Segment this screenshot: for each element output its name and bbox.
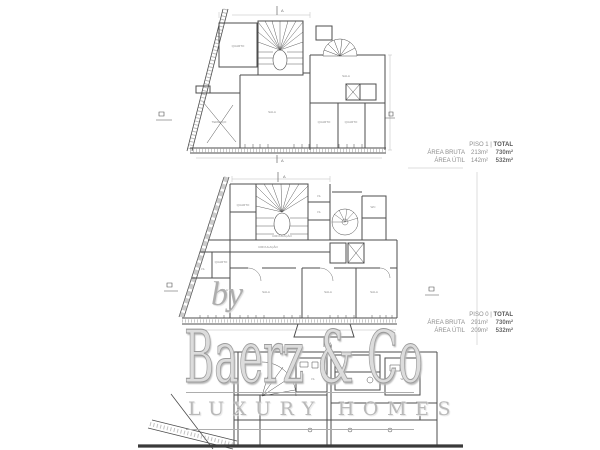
piso1-grand-stair-icon (258, 21, 303, 64)
piso0-left-marker (164, 283, 178, 291)
area-row-bruta: ÁREA BRUTA 291m² 730m² (421, 319, 513, 327)
room-label: WC (371, 205, 377, 209)
area-row-label: ÁREA BRUTA (421, 319, 465, 327)
area-total-value: 532m² (488, 157, 513, 165)
lower-boundary-hatch (150, 424, 235, 445)
piso1-left-marker (156, 112, 172, 120)
area-summary-title: PISO 0 | TOTAL (421, 311, 513, 319)
piso0-elevator-x-icon (348, 243, 364, 263)
area-total-value: 730m² (488, 319, 513, 327)
room-label: QUARTO (318, 120, 331, 124)
area-row-label: ÁREA ÚTIL (421, 157, 465, 165)
area-summary-piso0: PISO 0 | TOTAL ÁREA BRUTA 291m² 730m² ÁR… (421, 311, 513, 335)
room-label: QUARTO (237, 203, 250, 207)
piso0-grand-stair-icon (256, 184, 308, 234)
area-total-value: 532m² (488, 327, 513, 335)
room-label: I.S. (317, 210, 322, 214)
room-label: CIRCULAÇÃO (272, 233, 292, 238)
room-label: SALA (268, 110, 276, 114)
piso0-door-arcs (248, 268, 390, 281)
piso1-fan-stair-icon (323, 39, 357, 56)
piso1-dimension-lines (196, 12, 392, 158)
section-marker-a-top0: A (283, 174, 286, 179)
room-label: QUARTO (232, 44, 245, 48)
room-label: SALA (324, 290, 332, 294)
area-floor-value: 142m² (465, 157, 488, 165)
area-row-label: ÁREA BRUTA (421, 149, 465, 157)
piso1-boundary-hatch (190, 9, 226, 151)
piso1-walls (190, 21, 386, 153)
piso0-right-marker (425, 287, 439, 295)
room-label: QUARTO (345, 120, 358, 124)
area-summary-piso1: PISO 1 | TOTAL ÁREA BRUTA 213m² 730m² ÁR… (421, 141, 513, 165)
area-row-util: ÁREA ÚTIL 209m² 532m² (421, 327, 513, 335)
area-total-value: 730m² (488, 149, 513, 157)
area-row-util: ÁREA ÚTIL 142m² 532m² (421, 157, 513, 165)
floorplan-sheet: A A QUARTO SALA QUARTO QUARTO SALA TERRA… (0, 0, 600, 450)
piso1-shaft-x-icon (346, 84, 360, 100)
room-label: I.S. (317, 194, 322, 198)
piso0-spiral-stair-treads (332, 209, 358, 222)
plan-piso1 (156, 6, 395, 163)
room-label: SALA (342, 74, 350, 78)
total-label: TOTAL (494, 312, 513, 318)
piso1-stair-newel (273, 50, 287, 70)
piso1-window-ticks (245, 144, 362, 148)
watermark-rule-top (186, 392, 414, 393)
room-label: QUARTO (215, 260, 228, 264)
room-label: I.S. (201, 267, 206, 271)
section-marker-a-top1: A (281, 8, 284, 13)
watermark-by-text: by (211, 276, 243, 314)
area-floor-value: 209m² (465, 327, 488, 335)
room-label: SALA (262, 290, 270, 294)
watermark-tagline-text: LUXURY HOMES (188, 398, 459, 420)
floor-label: PISO 1 | (469, 142, 492, 148)
section-marker-a-bottom1: A (281, 158, 284, 163)
room-label: SALA (370, 290, 378, 294)
room-label: CIRCULAÇÃO (258, 244, 278, 249)
area-summary-title: PISO 1 | TOTAL (421, 141, 513, 149)
watermark-rule-bottom (186, 429, 414, 430)
piso0-stair-newel (274, 213, 290, 235)
area-floor-value: 213m² (465, 149, 488, 157)
floor-label: PISO 0 | (469, 312, 492, 318)
total-label: TOTAL (494, 142, 513, 148)
watermark-brand-text: Baerz & Co (184, 321, 423, 393)
room-label: TERRAÇO (212, 120, 227, 124)
area-row-bruta: ÁREA BRUTA 213m² 730m² (421, 149, 513, 157)
area-row-label: ÁREA ÚTIL (421, 327, 465, 335)
area-floor-value: 291m² (465, 319, 488, 327)
